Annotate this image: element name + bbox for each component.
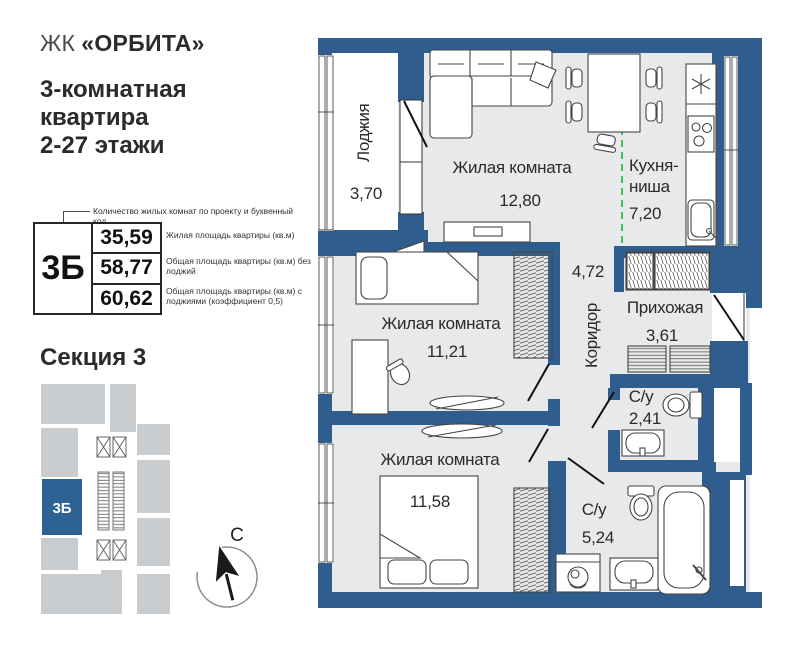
stove-icon bbox=[688, 116, 714, 152]
sink-icon-small-bath bbox=[622, 430, 664, 456]
kitchen-name-line1: Кухня- bbox=[629, 156, 678, 175]
tv-console-icon bbox=[444, 222, 530, 242]
loggia-name: Лоджия bbox=[354, 103, 373, 162]
living-mid-name: Жилая комната bbox=[382, 314, 502, 333]
washing-machine-icon bbox=[556, 554, 600, 592]
big-bath-area: 5,24 bbox=[582, 528, 614, 547]
kitchen-sink-icon bbox=[688, 200, 717, 240]
living-mid-area: 11,21 bbox=[427, 342, 467, 361]
living-bottom-area: 11,58 bbox=[410, 492, 450, 511]
small-bath-name: С/у bbox=[629, 387, 654, 406]
shaft-notch bbox=[730, 480, 744, 586]
hall-wardrobe-icon bbox=[626, 252, 710, 290]
north-label: С bbox=[230, 525, 244, 546]
hall-name: Прихожая bbox=[627, 298, 703, 317]
bathtub-icon bbox=[658, 486, 710, 594]
sink-icon-big-bath bbox=[610, 558, 658, 590]
corridor-name: Коридор bbox=[582, 303, 601, 368]
living-top-area: 12,80 bbox=[499, 191, 541, 210]
hall-area: 3,61 bbox=[646, 326, 678, 345]
mini-plan-code-label: 3Б bbox=[52, 500, 71, 517]
wardrobe-icon-room2 bbox=[514, 252, 552, 358]
big-bath-name: С/у bbox=[582, 500, 607, 519]
exterior-notch bbox=[714, 388, 740, 462]
toilet-icon-small-bath bbox=[663, 392, 702, 418]
board-icon-room3 bbox=[422, 424, 502, 438]
floor-plan: Лоджия 3,70 Жилая комната 12,80 Кухня- н… bbox=[318, 38, 762, 608]
small-bath-area: 2,41 bbox=[629, 409, 661, 428]
living-bottom-name: Жилая комната bbox=[381, 450, 501, 469]
kitchen-area: 7,20 bbox=[629, 204, 661, 223]
north-arrow-icon bbox=[208, 543, 245, 603]
loggia-area: 3,70 bbox=[350, 184, 382, 203]
section-mini-plan: 3Б bbox=[41, 384, 170, 614]
wardrobe-icon-room3 bbox=[514, 488, 550, 592]
toilet-icon-big-bath bbox=[628, 486, 654, 520]
plan-graphics: 3Б С bbox=[0, 0, 800, 645]
living-top-name: Жилая комната bbox=[453, 158, 573, 177]
corridor-area: 4,72 bbox=[572, 262, 604, 281]
stairs-icon bbox=[98, 472, 124, 530]
kitchen-appliances bbox=[686, 64, 717, 246]
kitchen-name-line2: ниша bbox=[629, 177, 671, 196]
board-icon-room2 bbox=[430, 396, 504, 410]
compass: С bbox=[197, 525, 257, 607]
flat-plan-page: ЖК«ОРБИТА» 3-комнатная квартира 2-27 эта… bbox=[0, 0, 800, 645]
